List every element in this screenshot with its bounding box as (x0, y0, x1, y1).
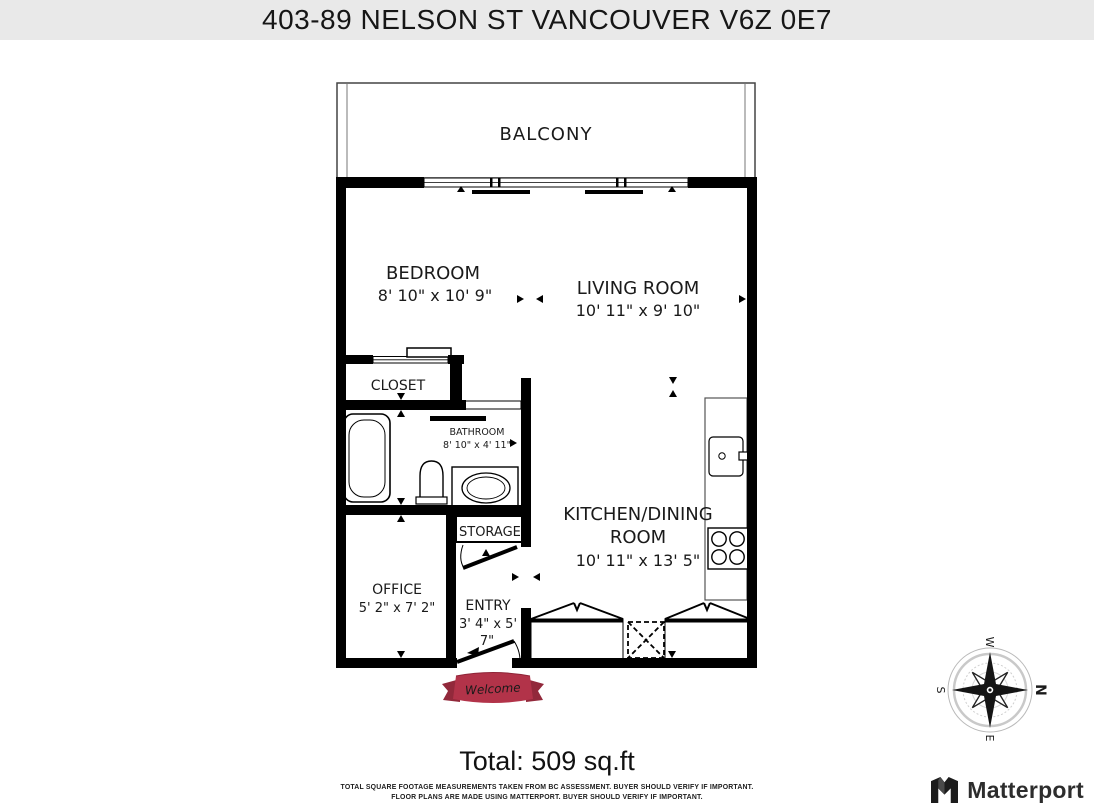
disclaimer-line-2: FLOOR PLANS ARE MADE USING MATTERPORT. B… (0, 793, 1094, 803)
room-dims-bathroom: 8' 10" x 4' 11" (443, 440, 511, 451)
room-dims-living-room: 10' 11" x 9' 10" (576, 301, 701, 320)
compass-south-label: S (934, 687, 947, 694)
room-dims-bedroom: 8' 10" x 10' 9" (378, 286, 492, 305)
room-label-bedroom: BEDROOM (386, 263, 480, 284)
room-label-closet: CLOSET (371, 378, 426, 394)
room-dims-office: 5' 2" x 7' 2" (359, 601, 435, 616)
kitchen-sink-icon (709, 437, 749, 476)
compass-west-label: W (983, 637, 996, 648)
matterport-branding: Matterport (931, 777, 1084, 804)
room-dims-kitchen: 10' 11" x 13' 5" (576, 551, 701, 570)
floor-plan-drawing: STORAGE (0, 0, 1094, 811)
room-labels: BALCONY BEDROOM 8' 10" x 10' 9" LIVING R… (359, 124, 713, 649)
sliding-door-panel (472, 190, 530, 194)
room-label-balcony: BALCONY (500, 124, 593, 145)
compass-north-label: N (1032, 684, 1048, 696)
bathtub-icon (344, 414, 390, 502)
room-dims-entry-line2: 7" (480, 634, 494, 649)
washer-dryer-icon (628, 622, 664, 658)
closet-sliding-door (373, 348, 451, 363)
welcome-mat-label: Welcome (465, 681, 521, 698)
disclaimer-line-1: TOTAL SQUARE FOOTAGE MEASUREMENTS TAKEN … (0, 783, 1094, 793)
total-area-label: Total: 509 sq.ft (0, 746, 1094, 777)
sliding-door-panel (585, 190, 643, 194)
bathroom-sink-icon (452, 467, 518, 508)
room-label-storage: STORAGE (459, 525, 521, 540)
disclaimer: TOTAL SQUARE FOOTAGE MEASUREMENTS TAKEN … (0, 783, 1094, 802)
room-label-living-room: LIVING ROOM (577, 278, 699, 299)
floor-plan-page: 403-89 NELSON ST VANCOUVER V6Z 0E7 (0, 0, 1094, 811)
room-label-kitchen-line1: KITCHEN/DINING (563, 504, 712, 525)
fixtures (344, 398, 750, 658)
room-label-kitchen-line2: ROOM (610, 527, 666, 548)
room-label-office: OFFICE (372, 582, 422, 598)
room-label-entry: ENTRY (465, 598, 511, 614)
compass-rose-icon: N E S W (934, 637, 1048, 742)
kitchen-counter (705, 398, 747, 600)
matterport-logo-icon (931, 777, 958, 804)
stove-icon (708, 528, 748, 569)
room-dims-entry-line1: 3' 4" x 5' (459, 617, 517, 632)
compass-east-label: E (983, 735, 996, 742)
storage-door (461, 545, 517, 568)
room-label-bathroom: BATHROOM (450, 427, 505, 438)
toilet-icon (416, 461, 447, 504)
matterport-wordmark: Matterport (967, 777, 1084, 804)
storage-label: STORAGE (456, 516, 522, 542)
welcome-mat: Welcome (442, 673, 544, 704)
bifold-closet-doors (531, 603, 750, 658)
